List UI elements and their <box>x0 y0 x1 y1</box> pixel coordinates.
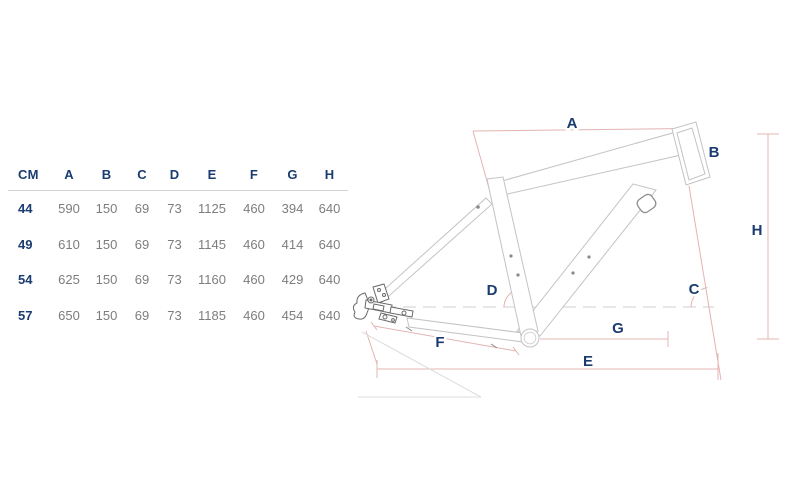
dim-label-f: F <box>435 334 444 351</box>
table-cell: 1160 <box>190 272 234 287</box>
table-cell: 150 <box>88 237 125 252</box>
table-cell: 625 <box>50 272 88 287</box>
table-cell: 610 <box>50 237 88 252</box>
table-cell: 414 <box>274 237 311 252</box>
col-header-c: C <box>125 167 159 182</box>
unit-header-cell: CM <box>8 167 50 182</box>
table-cell: 394 <box>274 201 311 216</box>
top-tube <box>502 132 690 195</box>
dim-label-c: C <box>689 281 700 298</box>
dim-label-a: A <box>567 115 578 132</box>
table-cell: 73 <box>159 237 190 252</box>
head-tube-outer <box>672 122 710 185</box>
table-row: 54 625 150 69 73 1160 460 429 640 <box>8 262 348 298</box>
table-cell: 69 <box>125 272 159 287</box>
table-row: 57 650 150 69 73 1185 460 454 640 <box>8 298 348 334</box>
seatstay-tube <box>376 198 492 303</box>
table-cell: 590 <box>50 201 88 216</box>
dim-label-d: D <box>487 282 498 299</box>
table-body: 44 590 150 69 73 1125 460 394 640 49 610… <box>8 191 348 333</box>
table-cell: 73 <box>159 272 190 287</box>
canvas: { "table": { "unit_header": "CM", "colum… <box>0 0 800 500</box>
table-cell: 69 <box>125 237 159 252</box>
table-cell: 150 <box>88 272 125 287</box>
col-header-d: D <box>159 167 190 182</box>
row-size-label: 57 <box>8 308 50 323</box>
down-tube <box>517 184 656 336</box>
table-cell: 73 <box>159 308 190 323</box>
dim-label-h: H <box>752 222 763 239</box>
table-cell: 640 <box>311 237 348 252</box>
col-header-h: H <box>311 167 348 182</box>
geometry-table: CM A B C D E F G H 44 590 150 69 73 1125… <box>8 158 348 333</box>
table-cell: 460 <box>234 308 274 323</box>
table-cell: 454 <box>274 308 311 323</box>
col-header-a: A <box>50 167 88 182</box>
col-header-g: G <box>274 167 311 182</box>
table-cell: 1145 <box>190 237 234 252</box>
table-cell: 640 <box>311 272 348 287</box>
table-cell: 1185 <box>190 308 234 323</box>
row-size-label: 44 <box>8 201 50 216</box>
rear-dropout-detail <box>353 284 413 323</box>
col-header-b: B <box>88 167 125 182</box>
table-cell: 460 <box>234 272 274 287</box>
table-cell: 640 <box>311 201 348 216</box>
table-cell: 69 <box>125 308 159 323</box>
table-cell: 1125 <box>190 201 234 216</box>
table-cell: 650 <box>50 308 88 323</box>
table-row: 44 590 150 69 73 1125 460 394 640 <box>8 191 348 227</box>
table-cell: 150 <box>88 201 125 216</box>
row-size-label: 54 <box>8 272 50 287</box>
table-row: 49 610 150 69 73 1145 460 414 640 <box>8 227 348 263</box>
table-cell: 460 <box>234 237 274 252</box>
table-cell: 429 <box>274 272 311 287</box>
table-cell: 73 <box>159 201 190 216</box>
table-cell: 150 <box>88 308 125 323</box>
chainstay-tube <box>407 318 523 342</box>
dim-label-b: B <box>709 144 720 161</box>
table-cell: 69 <box>125 201 159 216</box>
frame-tubes <box>376 122 710 347</box>
dim-line-a <box>473 129 684 132</box>
table-header-row: CM A B C D E F G H <box>8 158 348 191</box>
table-cell: 460 <box>234 201 274 216</box>
bike-geometry-diagram: A B H C D G E F <box>350 95 790 405</box>
col-header-f: F <box>234 167 274 182</box>
dim-label-e: E <box>583 353 593 370</box>
row-size-label: 49 <box>8 237 50 252</box>
dim-label-g: G <box>612 320 624 337</box>
table-cell: 640 <box>311 308 348 323</box>
col-header-e: E <box>190 167 234 182</box>
